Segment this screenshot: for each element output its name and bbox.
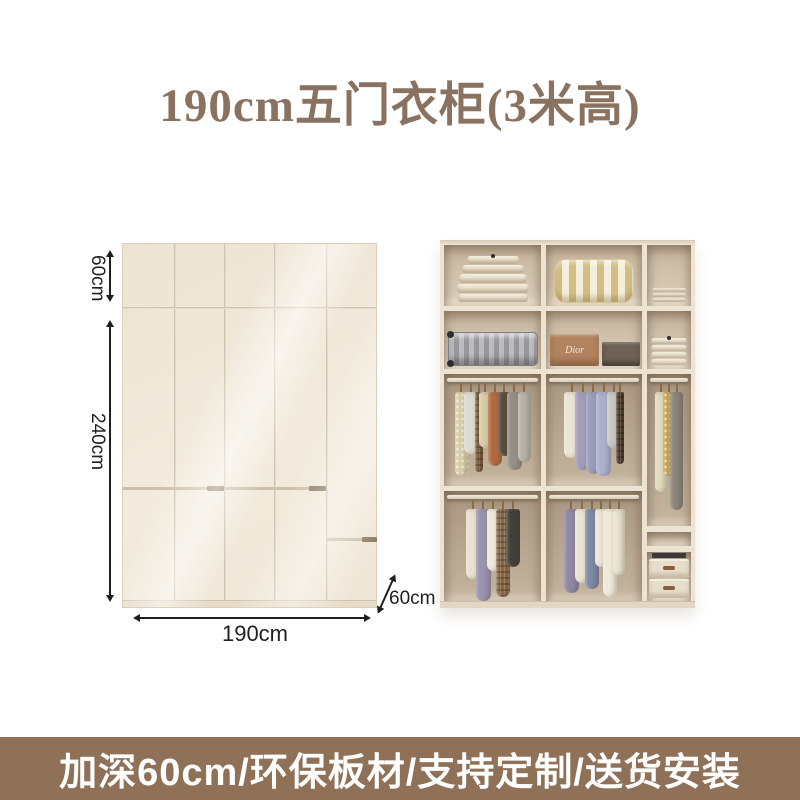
hanger-icon xyxy=(570,500,572,509)
towel xyxy=(651,352,687,358)
promo-banner: 加深60cm/环保板材/支持定制/送货安装 xyxy=(0,737,800,800)
aluminum-suitcase xyxy=(448,332,538,366)
shelf-cell-suitcase xyxy=(444,311,541,369)
storage-box xyxy=(649,579,689,598)
shelf-cell-towels xyxy=(647,311,691,369)
hanging-cell xyxy=(444,491,541,601)
handle-notch xyxy=(207,486,224,491)
hanging-cell xyxy=(546,491,642,601)
suitcase-wheel xyxy=(447,360,454,367)
hanger-icon xyxy=(609,500,611,509)
door-divider xyxy=(174,244,176,600)
hanger-icon xyxy=(470,383,472,392)
hanging-cell xyxy=(546,374,642,486)
garment xyxy=(518,392,531,462)
banner-text: 加深60cm/环保板材/支持定制/送货安装 xyxy=(59,741,741,796)
hanger-icon xyxy=(503,383,505,392)
hanger-icon xyxy=(676,383,678,392)
light-reflection xyxy=(123,244,376,607)
dim-label-top-height: 60cm xyxy=(86,255,108,299)
hanger-icon xyxy=(592,383,594,392)
storage-boxes xyxy=(649,553,689,599)
towel xyxy=(652,288,686,292)
towel xyxy=(651,345,687,351)
shelf-cell-duvets xyxy=(444,245,541,306)
garment-rail xyxy=(649,382,689,510)
hanger-icon xyxy=(460,383,462,392)
plinth xyxy=(123,600,376,607)
hanger-icon xyxy=(482,500,484,509)
shelf-cell-pillow xyxy=(546,245,642,306)
hanger-icon xyxy=(613,383,615,392)
hanger-icon xyxy=(582,383,584,392)
handle-notch xyxy=(362,537,377,542)
storage-box xyxy=(649,559,689,578)
door-divider xyxy=(224,244,226,600)
garment xyxy=(616,392,624,464)
hanger-icon xyxy=(619,383,621,392)
product-title: 190cm五门衣柜(3米高) xyxy=(0,66,800,135)
dim-label-main-height: 240cm xyxy=(86,413,108,469)
hanger-icon xyxy=(478,383,480,392)
hanging-cell xyxy=(647,374,691,526)
duvet-layer xyxy=(467,256,519,264)
folded-towels xyxy=(651,338,687,366)
towel xyxy=(652,293,686,297)
hanger-icon xyxy=(512,500,514,509)
duvet-layer xyxy=(458,294,528,302)
shelf-cell-boxes: Dior xyxy=(546,311,642,369)
button-dot xyxy=(491,254,495,258)
dim-arrow-top-height xyxy=(109,253,111,299)
shelf-cell-towels xyxy=(647,245,691,306)
folded-towels xyxy=(651,288,687,303)
duvet-layer xyxy=(459,274,527,283)
dark-box xyxy=(602,342,640,366)
wardrobe-front xyxy=(122,243,377,608)
gift-boxes: Dior xyxy=(550,334,640,366)
box-handle xyxy=(663,566,675,570)
handle-groove xyxy=(123,487,326,490)
product-card: 190cm五门衣柜(3米高) 60cm 240cm 190cm 60cm xyxy=(0,0,800,800)
button-dot xyxy=(667,336,671,340)
garment xyxy=(506,509,520,567)
hanger-icon xyxy=(513,383,515,392)
folded-duvets xyxy=(457,256,529,303)
hanger-icon xyxy=(600,500,602,509)
hanging-cell xyxy=(444,374,541,486)
empty-shelf-cell xyxy=(647,532,691,546)
folder-stack xyxy=(652,553,686,558)
dim-arrow-main-height xyxy=(109,323,111,599)
top-cabinet-divider xyxy=(123,307,376,309)
garment-rail xyxy=(548,499,640,597)
hanger-icon xyxy=(523,383,525,392)
garment-rail xyxy=(446,382,539,476)
hanger-icon xyxy=(492,500,494,509)
hanger-icon xyxy=(668,383,670,392)
garment xyxy=(613,509,625,575)
hanger-icon xyxy=(618,500,620,509)
cabinet-plinth xyxy=(440,601,695,608)
towel xyxy=(651,338,687,344)
hanger-icon xyxy=(484,383,486,392)
hanger-icon xyxy=(571,383,573,392)
dim-label-depth: 60cm xyxy=(389,588,435,610)
box-handle xyxy=(663,586,675,590)
hanger-icon xyxy=(472,500,474,509)
suitcase-wheel xyxy=(447,331,454,338)
hanger-icon xyxy=(502,500,504,509)
striped-pillow xyxy=(554,259,634,303)
handle-notch xyxy=(309,486,326,491)
garment-rail xyxy=(446,499,539,601)
garment-rail xyxy=(548,382,640,476)
door-divider xyxy=(326,244,328,600)
wardrobe-interior-photo: Dior xyxy=(440,240,695,608)
dim-label-width: 190cm xyxy=(197,621,313,647)
hanger-icon xyxy=(494,383,496,392)
dim-arrow-width xyxy=(136,617,368,619)
duvet-layer xyxy=(462,265,524,273)
hanger-icon xyxy=(591,500,593,509)
door-divider xyxy=(274,244,276,600)
dior-box: Dior xyxy=(550,334,599,366)
garment xyxy=(670,392,683,510)
shelf-cell-storage xyxy=(647,552,691,601)
towel xyxy=(651,359,687,365)
hanger-icon xyxy=(603,383,605,392)
towel xyxy=(652,298,686,302)
hanger-icon xyxy=(581,500,583,509)
hanger-icon xyxy=(660,383,662,392)
duvet-layer xyxy=(457,284,529,293)
